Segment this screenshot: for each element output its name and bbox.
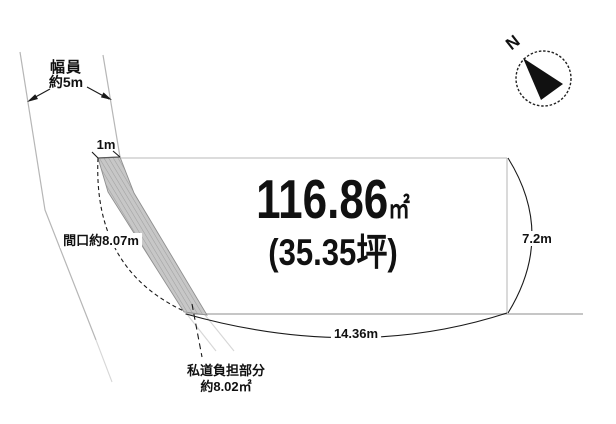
land-plot-diagram: 幅員 約5m 1m 間口約8.07m 7.2m 14.36m 私道負担部分 約8… — [0, 0, 616, 424]
road-left-edge-fade — [96, 340, 112, 382]
road-width-label: 幅員 約5m — [49, 60, 83, 90]
road-width-arrow-left — [27, 94, 38, 102]
area-value: 116.86㎡ — [256, 172, 410, 227]
bottom-side-length-label: 14.36m — [331, 326, 381, 341]
road-width-value: 約5m — [49, 75, 83, 90]
area-main-value: 116.86 — [256, 168, 388, 230]
road-edge-continuation-left — [186, 313, 216, 351]
right-side-length-label: 7.2m — [519, 231, 555, 246]
frontage-label: 間口約8.07m — [60, 233, 142, 248]
area-text-block: 116.86㎡ (35.35坪) — [237, 172, 429, 271]
strip-width-tick-left — [92, 152, 98, 158]
private-road-label-line1: 私道負担部分 — [187, 363, 265, 379]
strip-top-width-label: 1m — [97, 137, 116, 152]
area-tsubo-value: (35.35坪) — [252, 234, 413, 271]
road-width-title: 幅員 — [49, 60, 83, 75]
private-road-label-line2: 約8.02㎡ — [187, 379, 265, 395]
area-unit: ㎡ — [388, 194, 410, 224]
private-road-label: 私道負担部分 約8.02㎡ — [187, 363, 265, 395]
compass-needle-icon — [523, 58, 563, 100]
road-left-edge — [20, 52, 96, 340]
